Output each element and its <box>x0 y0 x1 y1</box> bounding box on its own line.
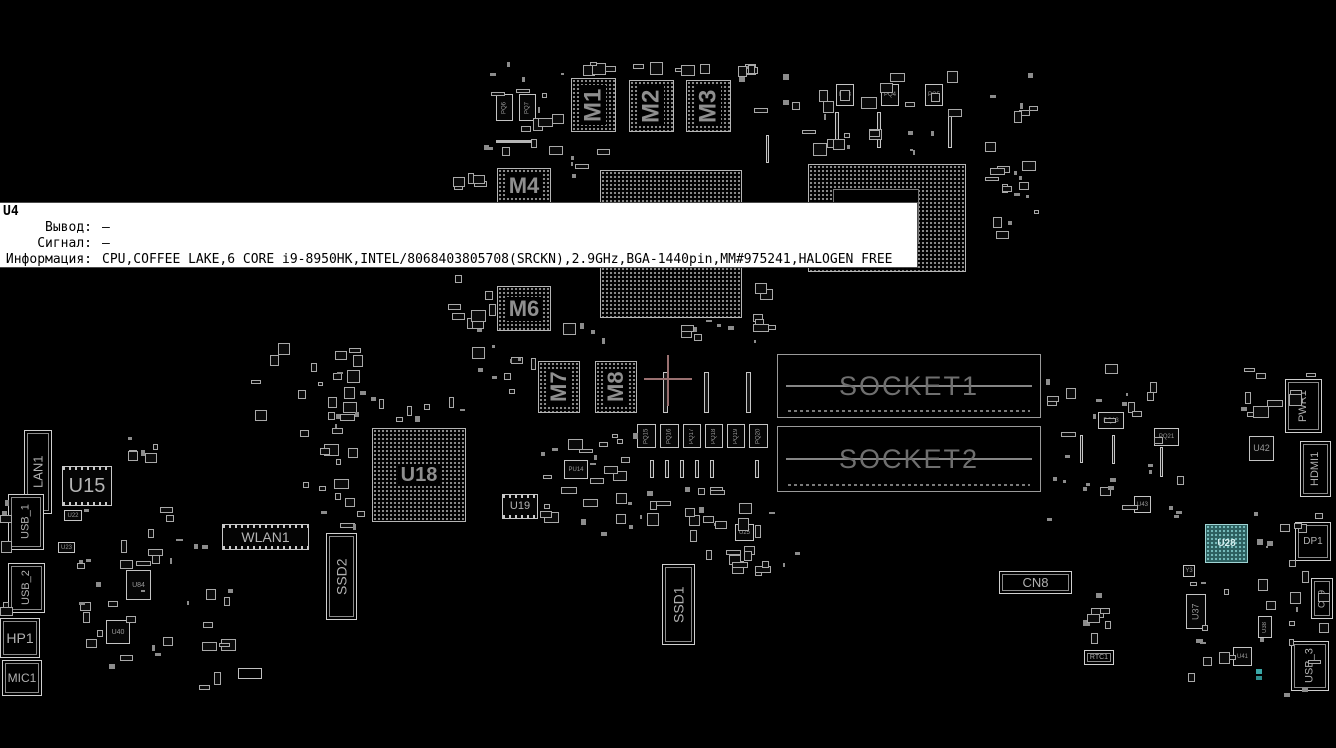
passive-component <box>685 508 695 517</box>
solder-pad <box>571 162 573 166</box>
solder-pad <box>594 455 597 460</box>
passive-component <box>710 490 725 495</box>
solder-pad <box>699 507 704 513</box>
passive-component <box>762 561 769 568</box>
passive-component <box>511 357 523 364</box>
component-m7[interactable]: M7 <box>538 361 580 413</box>
passive-component <box>344 387 355 399</box>
component-label: WLAN1 <box>241 530 289 544</box>
passive-component <box>300 430 309 437</box>
component-label: CN8 <box>1022 576 1048 589</box>
passive-component <box>353 355 363 367</box>
tooltip-signal-value: – <box>102 236 110 251</box>
component-pq20[interactable]: PQ20 <box>749 424 768 448</box>
solder-pad <box>754 340 756 343</box>
passive-component <box>1104 418 1116 423</box>
component-pq15[interactable]: PQ15 <box>637 424 656 448</box>
passive-component <box>453 177 465 187</box>
passive-component <box>108 601 118 607</box>
passive-component <box>542 93 547 98</box>
tooltip-pin-value: – <box>102 220 110 235</box>
passive-component <box>543 475 552 479</box>
component-label: PU14 <box>568 467 583 473</box>
board-slot[interactable] <box>766 135 769 163</box>
board-slot[interactable] <box>680 460 684 478</box>
component-label: M2 <box>639 86 665 125</box>
passive-component <box>1105 621 1111 629</box>
component-label: U23 <box>61 545 72 551</box>
passive-component <box>336 459 341 465</box>
solder-pad <box>1014 171 1017 175</box>
passive-component <box>255 410 267 421</box>
solder-pad <box>602 338 605 344</box>
component-label: U18 <box>398 464 441 486</box>
passive-component <box>335 493 341 500</box>
solder-pad <box>518 358 521 361</box>
solder-pad <box>706 320 712 322</box>
solder-pad <box>783 100 789 105</box>
passive-component <box>424 404 430 410</box>
passive-component <box>311 363 317 372</box>
component-m3[interactable]: M3 <box>686 80 731 132</box>
solder-pad <box>538 107 540 113</box>
passive-component <box>334 479 349 489</box>
component-pq19[interactable]: PQ19 <box>727 424 745 448</box>
board-slot[interactable] <box>1112 435 1115 464</box>
passive-component <box>1245 392 1251 404</box>
passive-component <box>128 451 138 461</box>
passive-component <box>347 370 360 383</box>
passive-component <box>471 310 486 322</box>
passive-component <box>597 149 610 155</box>
passive-component <box>1177 476 1184 485</box>
passive-component <box>332 428 343 434</box>
component-usb1[interactable]: USB_1 <box>8 494 44 550</box>
passive-component <box>1289 560 1296 567</box>
component-rtc1[interactable]: RTC1 <box>1084 650 1114 665</box>
board-slot[interactable] <box>755 460 759 478</box>
solder-pad <box>1201 582 1206 584</box>
solder-pad <box>1266 546 1268 548</box>
socket-mid-line <box>786 458 1032 460</box>
solder-pad <box>591 330 595 334</box>
board-slot[interactable] <box>948 112 952 148</box>
solder-pad <box>1028 73 1033 78</box>
solder-pad <box>647 491 653 496</box>
component-label: M6 <box>506 297 543 321</box>
passive-component <box>1224 589 1229 595</box>
passive-component <box>813 143 827 156</box>
passive-component <box>744 551 752 561</box>
passive-component <box>748 65 755 74</box>
component-pwr1[interactable]: PWR1 <box>1285 379 1322 433</box>
solder-pad <box>321 511 327 514</box>
passive-component <box>1 541 12 553</box>
solder-pad <box>371 397 376 401</box>
passive-component <box>1150 382 1157 393</box>
solder-pad <box>739 77 745 82</box>
passive-component <box>328 412 335 420</box>
passive-component <box>278 343 290 355</box>
passive-component <box>1019 182 1029 190</box>
solder-pad <box>109 664 115 669</box>
solder-pad <box>176 539 183 541</box>
solder-pad <box>353 524 356 530</box>
passive-component <box>1034 210 1039 214</box>
solder-pad <box>571 156 574 160</box>
passive-component <box>531 358 536 370</box>
passive-component <box>0 607 13 616</box>
board-canvas[interactable]: M1M2M3M4M6M7M8SOCKET1SOCKET2U18U15U19LAN… <box>0 0 1336 748</box>
solder-pad <box>1302 688 1308 692</box>
component-label: U22 <box>67 513 78 519</box>
passive-component <box>1002 186 1012 192</box>
passive-component <box>590 478 604 484</box>
solder-pad <box>908 131 913 135</box>
passive-component <box>1280 524 1290 532</box>
passive-component <box>1319 623 1329 633</box>
solder-pad <box>1083 487 1087 491</box>
component-label: PQ6 <box>502 102 508 114</box>
passive-component <box>563 323 576 335</box>
solder-pad <box>415 416 420 422</box>
component-ssd2[interactable]: SSD2 <box>326 533 357 620</box>
component-hdmi1[interactable]: HDMI1 <box>1300 441 1331 497</box>
passive-component <box>148 529 154 538</box>
passive-component <box>320 448 330 455</box>
passive-component <box>583 499 598 507</box>
solder-pad <box>783 74 789 80</box>
passive-component <box>1318 593 1330 602</box>
solder-pad <box>1053 477 1057 481</box>
solder-pad <box>847 145 850 149</box>
board-slot[interactable] <box>1080 435 1083 463</box>
board-slot[interactable] <box>695 460 699 478</box>
passive-component <box>1267 400 1283 407</box>
solder-pad <box>460 409 465 411</box>
solder-pad <box>510 359 512 363</box>
solder-pad <box>1296 607 1298 612</box>
passive-component <box>214 672 221 685</box>
solder-pad <box>155 653 161 656</box>
solder-pad <box>84 509 89 512</box>
component-label: U15 <box>69 476 106 496</box>
solder-pad <box>355 412 359 417</box>
solder-pad <box>1046 379 1050 385</box>
solder-pad <box>86 559 91 562</box>
component-u40[interactable]: U40 <box>106 620 130 644</box>
passive-component <box>1190 582 1197 586</box>
passive-component <box>206 589 216 600</box>
board-slot[interactable] <box>650 460 654 478</box>
passive-component <box>357 511 365 517</box>
solder-pad <box>1065 455 1070 458</box>
passive-component <box>1258 579 1268 591</box>
passive-component <box>1244 368 1255 372</box>
passive-component <box>407 406 412 416</box>
solder-pad <box>1093 414 1096 419</box>
component-pq7[interactable]: PQ7 <box>519 94 536 121</box>
component-pq6[interactable]: PQ6 <box>496 94 513 121</box>
passive-component <box>990 168 1005 175</box>
solder-pad <box>522 77 525 82</box>
component-ssd1[interactable]: SSD1 <box>662 564 695 645</box>
solder-pad <box>228 589 233 593</box>
passive-component <box>224 597 230 606</box>
component-pu14[interactable]: PU14 <box>564 460 588 479</box>
passive-component <box>86 639 97 648</box>
passive-component <box>1022 161 1036 171</box>
solder-pad <box>5 500 9 506</box>
passive-component <box>251 380 261 384</box>
component-u22[interactable]: U22 <box>64 510 82 521</box>
tooltip-signal-label: Сигнал: <box>0 236 92 252</box>
solder-pad <box>1126 393 1128 396</box>
solder-pad <box>1241 407 1247 411</box>
solder-pad <box>590 463 596 465</box>
solder-pad <box>824 114 826 120</box>
passive-component <box>77 563 85 569</box>
component-m8[interactable]: M8 <box>595 361 637 413</box>
passive-component <box>880 83 893 93</box>
tooltip-info-label: Информация: <box>0 252 92 268</box>
component-y3[interactable]: Y3 <box>1183 565 1195 577</box>
component-u15[interactable]: U15 <box>62 466 112 506</box>
passive-component <box>726 550 741 555</box>
solder-pad <box>490 73 496 76</box>
component-label: RTC1 <box>1090 654 1108 661</box>
passive-component <box>1091 633 1098 644</box>
passive-component <box>621 457 630 463</box>
solder-pad <box>628 502 632 505</box>
passive-component <box>126 616 136 623</box>
passive-component <box>468 173 474 184</box>
solder-pad <box>128 437 132 440</box>
passive-component <box>1202 625 1208 631</box>
passive-component <box>738 66 747 77</box>
component-socket1[interactable]: SOCKET1 <box>777 354 1041 418</box>
passive-component <box>298 390 306 399</box>
component-label: U19 <box>510 501 530 512</box>
component-label: PQ16 <box>667 428 673 443</box>
passive-component <box>694 334 702 341</box>
passive-component <box>1289 639 1294 646</box>
passive-component <box>549 146 563 155</box>
passive-component <box>844 133 850 138</box>
solder-pad <box>629 525 633 529</box>
solder-pad <box>640 515 642 519</box>
component-u28[interactable]: U28 <box>1205 524 1248 563</box>
tooltip-signal-row: Сигнал:– <box>0 236 917 252</box>
passive-component <box>869 130 880 137</box>
board-slot[interactable] <box>704 372 709 413</box>
component-cn8[interactable]: CN8 <box>999 571 1072 594</box>
passive-component <box>199 685 210 690</box>
component-label: PQ7 <box>525 102 531 114</box>
component-m4[interactable]: M4 <box>497 168 551 204</box>
passive-component <box>203 622 213 628</box>
passive-component <box>617 439 623 444</box>
passive-component <box>303 482 309 488</box>
solder-pad <box>170 558 172 564</box>
passive-component <box>755 525 761 538</box>
component-label: M4 <box>506 174 543 198</box>
passive-component <box>504 373 511 380</box>
component-label: MIC1 <box>8 672 37 684</box>
passive-component <box>698 488 705 495</box>
component-pq17[interactable]: PQ17 <box>683 424 701 448</box>
component-pq18[interactable]: PQ18 <box>705 424 723 448</box>
solder-pad <box>783 563 785 567</box>
component-pq16[interactable]: PQ16 <box>660 424 679 448</box>
passive-component <box>1188 673 1195 682</box>
solder-pad <box>685 487 690 492</box>
component-m6[interactable]: M6 <box>497 286 551 331</box>
passive-component <box>345 498 355 507</box>
solder-pad <box>580 323 584 329</box>
solder-pad <box>931 131 934 136</box>
board-slot[interactable] <box>663 372 668 413</box>
solder-pad <box>728 326 734 330</box>
passive-component <box>1029 106 1038 111</box>
solder-pad <box>152 645 155 651</box>
component-wlan1[interactable]: WLAN1 <box>222 524 309 550</box>
component-label: U37 <box>1192 603 1201 620</box>
component-label: U40 <box>112 629 125 636</box>
solder-pad <box>795 552 800 555</box>
passive-component <box>544 504 550 509</box>
passive-component <box>947 71 958 83</box>
solder-pad <box>1148 464 1153 467</box>
passive-component <box>472 347 485 359</box>
passive-component <box>1306 373 1316 377</box>
passive-component <box>633 64 644 69</box>
board-extra-part <box>496 140 532 143</box>
component-label: Y3 <box>1185 568 1192 574</box>
passive-component <box>738 518 749 531</box>
passive-component <box>136 561 151 566</box>
passive-component <box>1229 655 1236 660</box>
solder-pad <box>141 590 145 592</box>
component-u18[interactable]: U18 <box>372 428 466 522</box>
board-slot[interactable] <box>710 460 714 478</box>
component-usb2[interactable]: USB_2 <box>8 563 45 613</box>
solder-pad <box>990 95 996 98</box>
component-label: M7 <box>547 369 571 406</box>
solder-pad <box>337 372 343 374</box>
passive-component <box>333 373 342 380</box>
passive-component <box>153 444 158 450</box>
component-label: U43 <box>1137 502 1148 508</box>
component-socket2[interactable]: SOCKET2 <box>777 426 1041 492</box>
passive-component <box>616 514 626 524</box>
passive-component <box>1154 437 1163 444</box>
solder-pad <box>1257 539 1263 545</box>
passive-component <box>83 612 90 623</box>
solder-pad <box>633 433 638 439</box>
passive-component <box>1147 392 1154 401</box>
solder-pad <box>601 532 607 536</box>
passive-component <box>1061 432 1076 437</box>
component-label: PQ15 <box>644 428 650 443</box>
solder-pad <box>489 147 493 150</box>
passive-component <box>993 217 1002 228</box>
component-label: PQ20 <box>756 428 762 443</box>
component-u19[interactable]: U19 <box>502 494 538 519</box>
passive-component <box>561 487 577 494</box>
solder-pad <box>187 601 189 605</box>
passive-component <box>1066 388 1076 399</box>
solder-pad <box>717 324 721 327</box>
component-label: LAN1 <box>32 456 45 489</box>
component-u37[interactable]: U37 <box>1186 594 1206 629</box>
board-extra-part <box>1256 676 1262 680</box>
passive-component <box>1014 111 1022 123</box>
board-slot[interactable] <box>665 460 669 478</box>
component-u23[interactable]: U23 <box>58 542 75 553</box>
component-mic1[interactable]: MIC1 <box>2 660 42 696</box>
component-label: DP1 <box>1303 537 1322 547</box>
solder-pad <box>541 452 545 456</box>
component-u38[interactable]: U38 <box>1258 616 1272 638</box>
solder-pad <box>1014 193 1020 196</box>
component-label: HP1 <box>6 631 33 645</box>
component-m1[interactable]: M1 <box>571 78 616 132</box>
passive-component <box>219 643 230 647</box>
board-slot[interactable] <box>1160 447 1163 477</box>
solder-pad <box>1026 195 1029 198</box>
passive-component <box>590 62 597 66</box>
passive-component <box>605 66 616 72</box>
passive-component <box>349 348 361 353</box>
component-m2[interactable]: M2 <box>629 80 674 132</box>
board-slot[interactable] <box>746 372 751 413</box>
passive-component <box>270 355 279 366</box>
solder-pad <box>552 448 558 451</box>
component-label: PQ18 <box>711 428 717 443</box>
component-usb3[interactable]: USB_3 <box>1291 641 1329 691</box>
passive-component <box>166 515 174 522</box>
passive-component <box>1122 505 1138 510</box>
tooltip-info-row: Информация:CPU,COFFEE LAKE,6 CORE i9-895… <box>0 252 917 268</box>
passive-component <box>802 130 816 134</box>
component-label: M3 <box>696 86 722 125</box>
passive-component <box>449 397 454 408</box>
component-info-tooltip: U4 Вывод:– Сигнал:– Информация:CPU,COFFE… <box>0 202 918 268</box>
passive-component <box>890 73 905 82</box>
solder-pad <box>492 345 495 348</box>
solder-pad <box>913 150 915 155</box>
passive-component <box>579 449 593 453</box>
tooltip-info-value: CPU,COFFEE LAKE,6 CORE i9-8950HK,INTEL/8… <box>102 252 893 267</box>
passive-component <box>1047 396 1059 402</box>
passive-component <box>148 549 163 556</box>
component-label: SSD1 <box>672 586 686 623</box>
passive-component <box>1290 592 1301 604</box>
passive-component <box>604 466 618 474</box>
component-hp1[interactable]: HP1 <box>0 618 40 658</box>
tooltip-ref-designator: U4 <box>0 204 917 220</box>
component-label: USB_3 <box>1305 649 1316 684</box>
solder-pad <box>1149 470 1152 474</box>
passive-component <box>552 114 564 124</box>
passive-component <box>1302 571 1309 583</box>
component-u84[interactable]: U84 <box>126 570 151 600</box>
passive-component <box>502 147 510 156</box>
passive-component <box>1253 406 1269 418</box>
solder-pad <box>1047 518 1052 521</box>
component-u42[interactable]: U42 <box>1249 436 1274 461</box>
